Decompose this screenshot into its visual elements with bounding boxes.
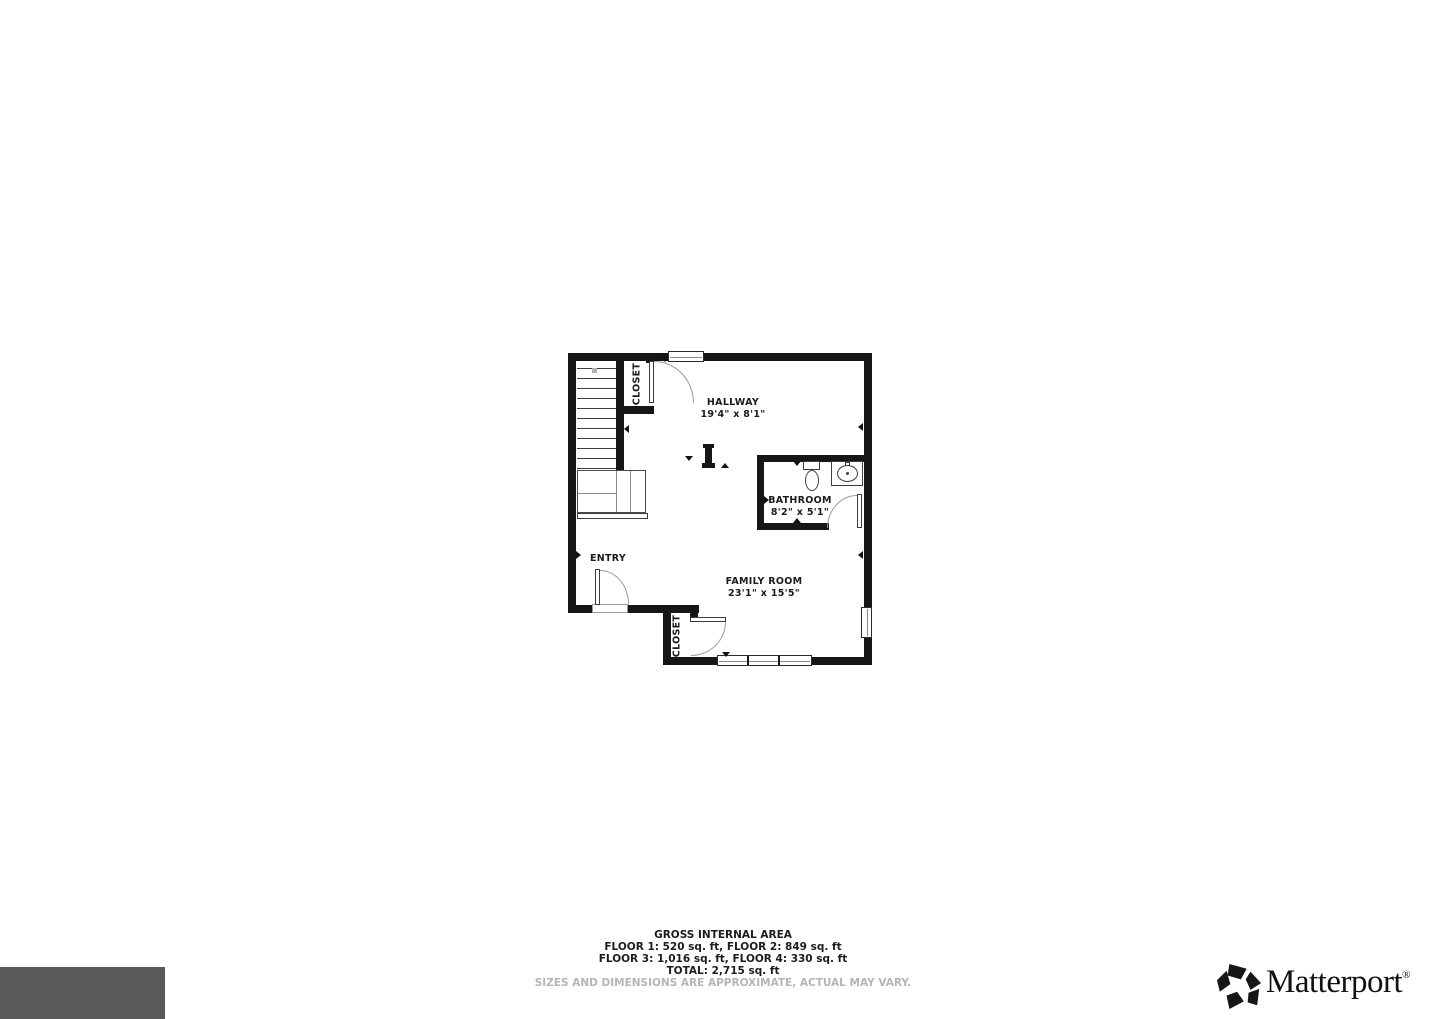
wall-center-stub-foot bbox=[702, 463, 715, 468]
marker-arrow-hallway-right bbox=[858, 423, 863, 431]
marker-arrow-family-top bbox=[721, 463, 729, 468]
area-summary: GROSS INTERNAL AREA FLOOR 1: 520 sq. ft,… bbox=[535, 929, 912, 989]
room-label-hallway: HALLWAY bbox=[707, 397, 759, 408]
wall-closet-family-left bbox=[663, 605, 671, 665]
stair-marker bbox=[592, 368, 597, 373]
room-label-closet-family: CLOSET bbox=[672, 615, 683, 657]
area-summary-total: TOTAL: 2,715 sq. ft bbox=[535, 965, 912, 977]
door-arc-closet-family bbox=[691, 622, 726, 656]
sink-drain-icon bbox=[846, 472, 849, 475]
bright-mls-logo: bright ✦ ™ MLS bbox=[0, 967, 165, 1019]
door-arc-entry bbox=[600, 570, 629, 604]
marker-arrow-family-right bbox=[858, 551, 863, 559]
room-label-bathroom: BATHROOM bbox=[768, 495, 832, 506]
window-right bbox=[861, 607, 872, 638]
matterport-wordmark: Matterport® bbox=[1266, 964, 1410, 1001]
matterport-pinwheel-icon bbox=[1216, 964, 1262, 1010]
toilet-tank-icon bbox=[803, 461, 820, 470]
marker-arrow-hallway-bottom bbox=[685, 456, 693, 461]
wall-entry-right bbox=[628, 605, 663, 613]
marker-arrow-top bbox=[661, 357, 669, 362]
area-summary-line2: FLOOR 3: 1,016 sq. ft, FLOOR 4: 330 sq. … bbox=[535, 953, 912, 965]
area-summary-disclaimer: SIZES AND DIMENSIONS ARE APPROXIMATE, AC… bbox=[535, 977, 912, 989]
room-dims-family-room: 23'1" x 15'5" bbox=[728, 588, 800, 599]
window-top bbox=[668, 351, 704, 362]
marker-arrow-bathroom-top bbox=[793, 461, 801, 466]
room-dims-hallway: 19'4" x 8'1" bbox=[700, 409, 765, 420]
marker-arrow-entry-left bbox=[576, 551, 581, 559]
marker-arrow-bottom-window bbox=[722, 652, 730, 657]
room-label-entry: ENTRY bbox=[590, 553, 626, 564]
wall-closet-hallway-bottom bbox=[616, 406, 654, 414]
toilet-bowl-icon bbox=[805, 470, 819, 491]
room-label-family-room: FAMILY ROOM bbox=[726, 576, 803, 587]
floorplan-page: HALLWAY 19'4" x 8'1" BATHROOM 8'2" x 5'1… bbox=[0, 0, 1440, 1019]
wall-bathroom-bottom bbox=[757, 523, 829, 530]
marker-arrow-stairs bbox=[624, 425, 629, 433]
wall-bathroom-left bbox=[757, 455, 764, 530]
sink-faucet-icon bbox=[845, 462, 850, 466]
staircase-rail bbox=[577, 513, 648, 519]
staircase-landing bbox=[577, 470, 646, 513]
room-dims-bathroom: 8'2" x 5'1" bbox=[771, 507, 829, 518]
window-bottom bbox=[717, 655, 812, 666]
door-arc-closet-hallway bbox=[654, 361, 694, 403]
marker-arrow-bathroom-bottom bbox=[793, 518, 801, 523]
room-label-closet-hallway: CLOSET bbox=[632, 363, 643, 405]
door-leaf-bathroom bbox=[857, 494, 862, 528]
wall-left bbox=[568, 353, 576, 613]
staircase-run bbox=[577, 359, 616, 470]
wall-entry-left bbox=[568, 605, 592, 613]
area-summary-title: GROSS INTERNAL AREA bbox=[535, 929, 912, 941]
entry-threshold bbox=[592, 604, 628, 613]
area-summary-line1: FLOOR 1: 520 sq. ft, FLOOR 2: 849 sq. ft bbox=[535, 941, 912, 953]
matterport-registered-mark: ® bbox=[1402, 969, 1410, 981]
